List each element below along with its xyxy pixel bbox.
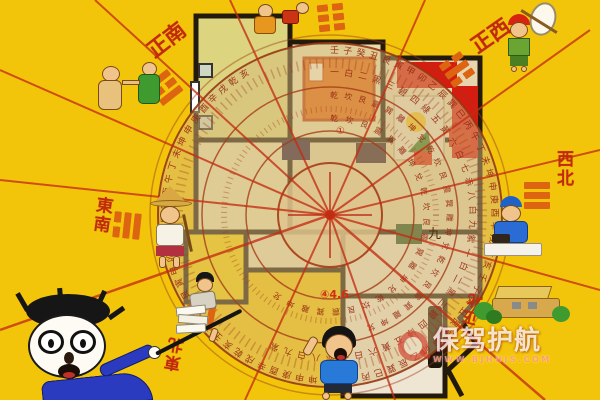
farmer-illustration (146, 186, 202, 270)
annotation-one: ① (336, 126, 345, 137)
pupil (48, 339, 54, 348)
leg (208, 327, 219, 343)
bar (524, 182, 550, 189)
hair-spike (15, 292, 29, 312)
book (176, 323, 206, 334)
fengshui-poster: 壬子癸丑艮寅甲卯乙辰巽巳丙午丁未坤申庚酉辛戌乾亥壬子癸丑艮寅甲卯乙辰巽巳丙午丁未… (0, 0, 600, 400)
quarreling-pair-illustration (96, 58, 172, 120)
shorts (156, 246, 184, 256)
bar (112, 211, 122, 238)
professor-illustration (2, 292, 187, 400)
nose (64, 352, 74, 364)
bar (318, 13, 345, 23)
iron (492, 234, 510, 243)
pants (510, 56, 528, 66)
red-bag (282, 10, 299, 24)
face (501, 205, 521, 222)
arm-up (302, 335, 320, 357)
direction-label-southeast: 東南 (89, 195, 111, 235)
body (254, 16, 276, 34)
bar (122, 212, 132, 239)
annotation-46: ④4.6 (320, 288, 349, 301)
annotation-nine: 九 (428, 227, 441, 242)
window (512, 302, 521, 309)
window (528, 302, 537, 309)
hair-spike (108, 306, 126, 320)
face (510, 22, 528, 38)
pupil (80, 339, 86, 348)
bush (552, 306, 570, 322)
trigram-icon-southeast (112, 211, 142, 240)
head (296, 2, 309, 14)
leg (344, 392, 352, 400)
house-cart-illustration (474, 280, 574, 332)
body (98, 80, 122, 110)
trigram-icon-top-center (317, 3, 346, 33)
shirt (508, 38, 530, 56)
top-figures-illustration (248, 0, 312, 36)
bush (486, 310, 502, 324)
leg (173, 256, 180, 268)
runaway-boy-illustration (504, 0, 568, 72)
arm (122, 80, 140, 85)
tongue (63, 372, 75, 378)
body (138, 74, 160, 104)
shirt (320, 360, 358, 384)
fixture-a (199, 64, 212, 77)
leg (322, 392, 330, 400)
bar (317, 3, 344, 13)
books-person-illustration (170, 272, 234, 348)
running-boy-illustration (296, 326, 392, 400)
house-body (492, 298, 560, 318)
leg (521, 66, 527, 72)
direction-label-northwest: 西北 (554, 150, 571, 188)
leg (511, 66, 517, 72)
table (484, 243, 542, 256)
face (160, 206, 180, 224)
leg (159, 256, 166, 268)
shirt (156, 224, 184, 246)
worker-illustration (484, 196, 546, 260)
